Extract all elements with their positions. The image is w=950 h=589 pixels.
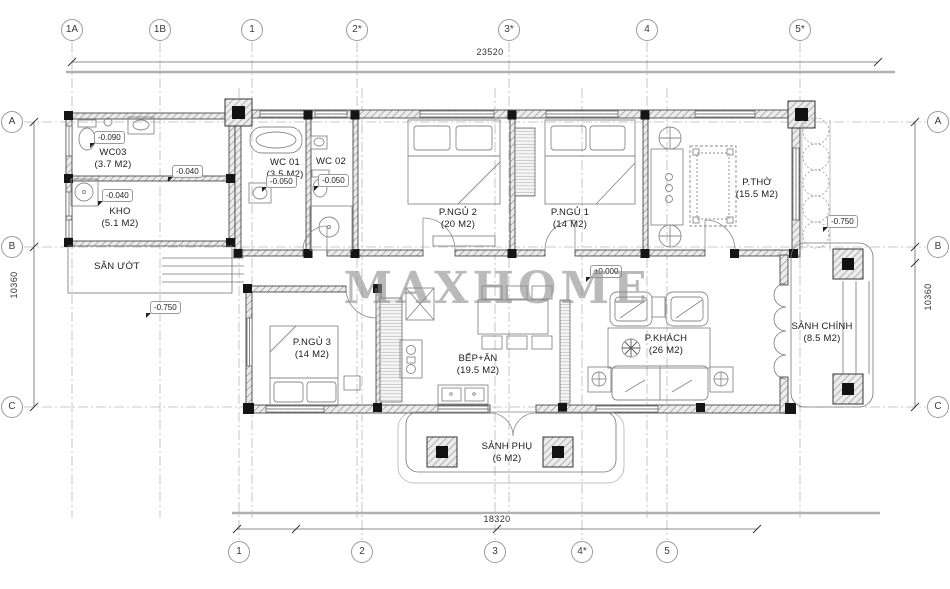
level-value: -0.050 <box>322 176 345 185</box>
room-area: (14 M2) <box>293 349 331 361</box>
grid-bubble-left-c: C <box>1 396 23 418</box>
room-area: (15.5 M2) <box>736 189 778 201</box>
grid-bubble-top-2: 2* <box>346 19 368 41</box>
grid-bubble-top-1: 1 <box>241 19 263 41</box>
dimension-right: 10360 <box>923 281 933 312</box>
room-label-pngu1: P.NGỦ 1 (14 M2) <box>551 207 589 232</box>
level-arrow-icon <box>314 186 319 191</box>
room-area: (26 M2) <box>645 345 687 357</box>
grid-bubble-top-1b: 1B <box>149 19 171 41</box>
level-tag-kho: -0.040 <box>102 189 133 202</box>
level-value: -0.050 <box>270 177 293 186</box>
level-value: -0.040 <box>176 167 199 176</box>
room-area: (3.7 M2) <box>95 159 132 171</box>
dimension-bottom: 18320 <box>481 514 512 524</box>
room-label-pngu2: P.NGỦ 2 (20 M2) <box>439 207 477 232</box>
grid-bubble-left-a: A <box>1 111 23 133</box>
level-tag-san-uot: -0.750 <box>150 301 181 314</box>
room-name: SẢNH PHỤ <box>482 441 533 453</box>
level-value: ±0.000 <box>594 267 618 276</box>
dimension-left: 10360 <box>9 269 19 300</box>
room-name: P.NGỦ 3 <box>293 337 331 349</box>
room-area: (19.5 M2) <box>457 365 499 377</box>
room-name: WC 01 <box>267 157 304 169</box>
room-label-wc03: WC03 (3.7 M2) <box>95 147 132 172</box>
level-tag-wc01: -0.050 <box>266 175 297 188</box>
level-arrow-icon <box>262 187 267 192</box>
dimension-lines <box>30 58 919 533</box>
room-label-pngu3: P.NGỦ 3 (14 M2) <box>293 337 331 362</box>
room-label-bepan: BẾP+ĂN (19.5 M2) <box>457 353 499 378</box>
room-label-ptho: P.THỜ (15.5 M2) <box>736 177 778 202</box>
grid-bubble-top-4: 4 <box>636 19 658 41</box>
level-value: -0.040 <box>106 191 129 200</box>
room-label-san-uot: SÂN ƯỚT <box>94 261 140 273</box>
grid-bubble-top-3: 3* <box>498 19 520 41</box>
room-area: (6 M2) <box>482 453 533 465</box>
room-label-wc02: WC 02 <box>316 156 346 168</box>
level-arrow-icon <box>823 227 828 232</box>
level-tag-annex: -0.040 <box>172 165 203 178</box>
room-name: P.NGỦ 1 <box>551 207 589 219</box>
grid-bubble-bottom-4: 4* <box>571 541 593 563</box>
level-arrow-icon <box>586 277 591 282</box>
room-area: (14 M2) <box>551 219 589 231</box>
grid-bubble-bottom-5: 5 <box>656 541 678 563</box>
level-arrow-icon <box>90 143 95 148</box>
room-name: SÂN ƯỚT <box>94 261 140 273</box>
room-area: (20 M2) <box>439 219 477 231</box>
grid-bubble-left-b: B <box>1 236 23 258</box>
grid-bubble-top-5: 5* <box>789 19 811 41</box>
level-arrow-icon <box>168 177 173 182</box>
floor-plan-canvas: MAXHOME 1A 1B 1 2* 3* 4 5* 1 2 3 4* 5 A … <box>0 0 950 589</box>
room-label-sanh-chinh: SẢNH CHÍNH (8.5 M2) <box>791 321 852 346</box>
level-tag-porch: -0.750 <box>827 215 858 228</box>
grid-bubble-right-b: B <box>927 236 949 258</box>
room-name: WC 02 <box>316 156 346 168</box>
room-name: WC03 <box>95 147 132 159</box>
level-value: -0.090 <box>98 133 121 142</box>
level-arrow-icon <box>146 313 151 318</box>
level-arrow-icon <box>98 201 103 206</box>
level-value: -0.750 <box>154 303 177 312</box>
room-name: SẢNH CHÍNH <box>791 321 852 333</box>
furniture <box>71 117 736 406</box>
grid-bubble-bottom-3: 3 <box>484 541 506 563</box>
level-value: -0.750 <box>831 217 854 226</box>
room-name: P.KHÁCH <box>645 333 687 345</box>
grid-bubble-bottom-2: 2 <box>351 541 373 563</box>
grid-bubble-bottom-1: 1 <box>228 541 250 563</box>
room-name: P.NGỦ 2 <box>439 207 477 219</box>
room-area: (8.5 M2) <box>791 333 852 345</box>
level-tag-main: ±0.000 <box>590 265 622 278</box>
room-label-pkhach: P.KHÁCH (26 M2) <box>645 333 687 358</box>
grid-bubble-right-c: C <box>927 396 949 418</box>
dimension-top: 23520 <box>474 47 505 57</box>
grid-bubble-right-a: A <box>927 111 949 133</box>
grid-bubble-top-1a: 1A <box>61 19 83 41</box>
level-tag-wc02: -0.050 <box>318 174 349 187</box>
level-tag-wc03: -0.090 <box>94 131 125 144</box>
room-name: BẾP+ĂN <box>457 353 499 365</box>
room-name: KHO <box>102 206 139 218</box>
room-label-sanh-phu: SẢNH PHỤ (6 M2) <box>482 441 533 466</box>
room-label-kho: KHO (5.1 M2) <box>102 206 139 231</box>
plan-drawing <box>0 0 950 589</box>
room-name: P.THỜ <box>736 177 778 189</box>
room-area: (5.1 M2) <box>102 218 139 230</box>
